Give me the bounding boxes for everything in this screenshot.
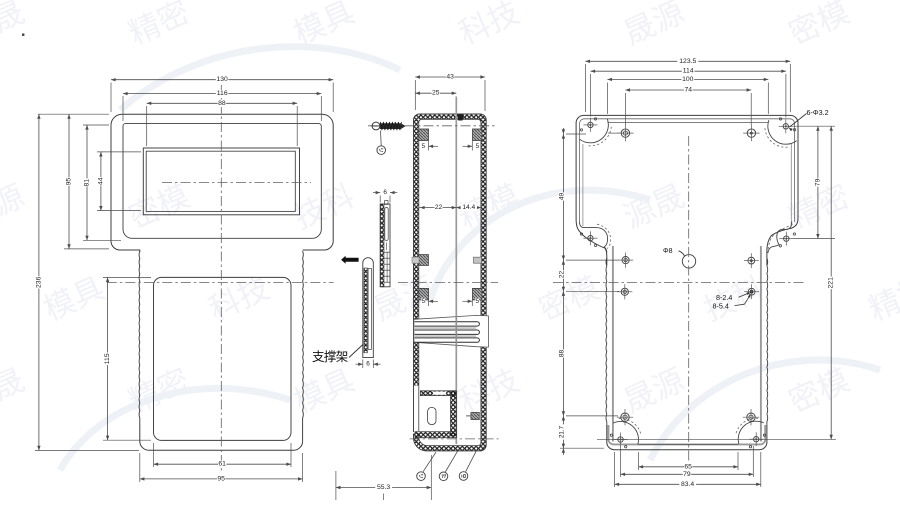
svg-text:61: 61 bbox=[218, 461, 226, 468]
svg-text:79: 79 bbox=[683, 471, 691, 478]
svg-text:5: 5 bbox=[422, 298, 426, 305]
svg-text:123.5: 123.5 bbox=[679, 58, 696, 65]
svg-text:88: 88 bbox=[218, 100, 226, 107]
svg-text:22: 22 bbox=[435, 204, 443, 211]
svg-text:5: 5 bbox=[476, 298, 480, 305]
svg-text:22: 22 bbox=[558, 271, 565, 279]
svg-text:55.3: 55.3 bbox=[377, 484, 390, 491]
svg-text:115: 115 bbox=[104, 353, 111, 364]
svg-text:83.4: 83.4 bbox=[681, 481, 694, 488]
svg-text:49: 49 bbox=[558, 193, 565, 201]
svg-text:6: 6 bbox=[366, 361, 370, 368]
svg-text:6: 6 bbox=[383, 189, 387, 196]
svg-text:6-Φ3.2: 6-Φ3.2 bbox=[807, 108, 829, 117]
svg-text:221: 221 bbox=[828, 277, 835, 289]
svg-text:Φ8: Φ8 bbox=[663, 248, 673, 255]
svg-text:130: 130 bbox=[216, 76, 228, 83]
svg-text:44: 44 bbox=[97, 177, 104, 185]
svg-text:88: 88 bbox=[558, 350, 565, 358]
svg-text:65: 65 bbox=[684, 463, 692, 470]
svg-text:5: 5 bbox=[422, 143, 426, 150]
svg-text:21.7: 21.7 bbox=[558, 425, 565, 438]
svg-text:79: 79 bbox=[814, 178, 821, 186]
svg-text:81: 81 bbox=[84, 179, 91, 187]
svg-text:支撑架: 支撑架 bbox=[312, 349, 348, 364]
svg-text:114: 114 bbox=[683, 68, 694, 75]
svg-text:116: 116 bbox=[217, 90, 228, 97]
svg-text:74: 74 bbox=[685, 87, 693, 94]
svg-text:25: 25 bbox=[432, 90, 440, 97]
svg-text:14.4: 14.4 bbox=[462, 204, 475, 211]
svg-text:95: 95 bbox=[217, 475, 225, 482]
svg-text:43: 43 bbox=[446, 74, 454, 81]
svg-text:95: 95 bbox=[66, 178, 73, 186]
svg-text:100: 100 bbox=[682, 76, 694, 83]
svg-text:8-5.4: 8-5.4 bbox=[713, 301, 729, 310]
svg-text:5: 5 bbox=[476, 143, 480, 150]
svg-text:236: 236 bbox=[35, 276, 42, 288]
